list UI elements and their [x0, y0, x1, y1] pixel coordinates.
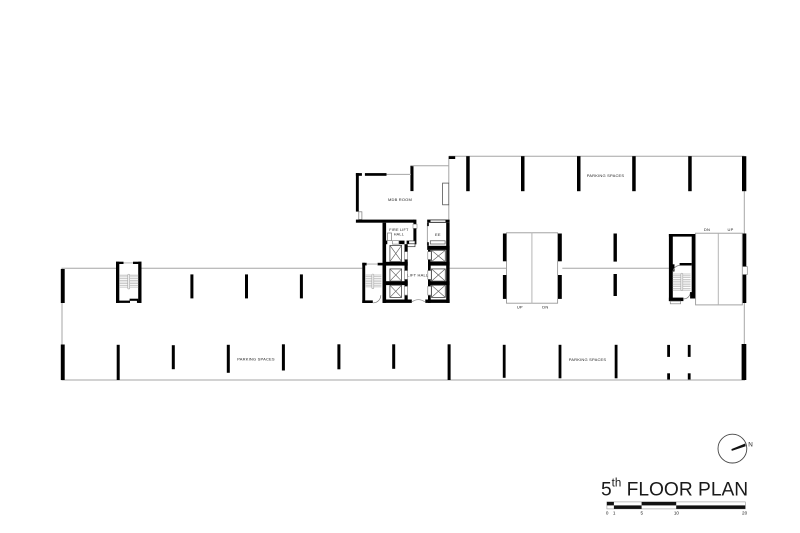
svg-text:N: N — [748, 441, 753, 448]
svg-text:DN: DN — [542, 304, 548, 309]
svg-text:DN: DN — [704, 227, 710, 232]
svg-text:0: 0 — [606, 511, 609, 516]
svg-text:20: 20 — [742, 511, 748, 516]
svg-text:FIRE LIFT: FIRE LIFT — [389, 228, 409, 232]
svg-text:MDB ROOM: MDB ROOM — [388, 197, 412, 202]
svg-text:HALL: HALL — [394, 233, 404, 237]
svg-text:5: 5 — [641, 511, 644, 516]
svg-text:1: 1 — [613, 511, 616, 516]
svg-text:EE: EE — [435, 232, 441, 237]
svg-text:PARKING SPACES: PARKING SPACES — [237, 357, 275, 362]
svg-text:UP: UP — [517, 304, 523, 309]
svg-text:10: 10 — [674, 511, 680, 516]
svg-text:LIFT HALL: LIFT HALL — [407, 272, 429, 277]
svg-text:5th FLOOR PLAN: 5th FLOOR PLAN — [601, 478, 748, 501]
svg-text:PARKING SPACES: PARKING SPACES — [569, 357, 607, 362]
svg-text:UP: UP — [728, 227, 734, 232]
svg-text:PARKING SPACES: PARKING SPACES — [587, 173, 625, 178]
